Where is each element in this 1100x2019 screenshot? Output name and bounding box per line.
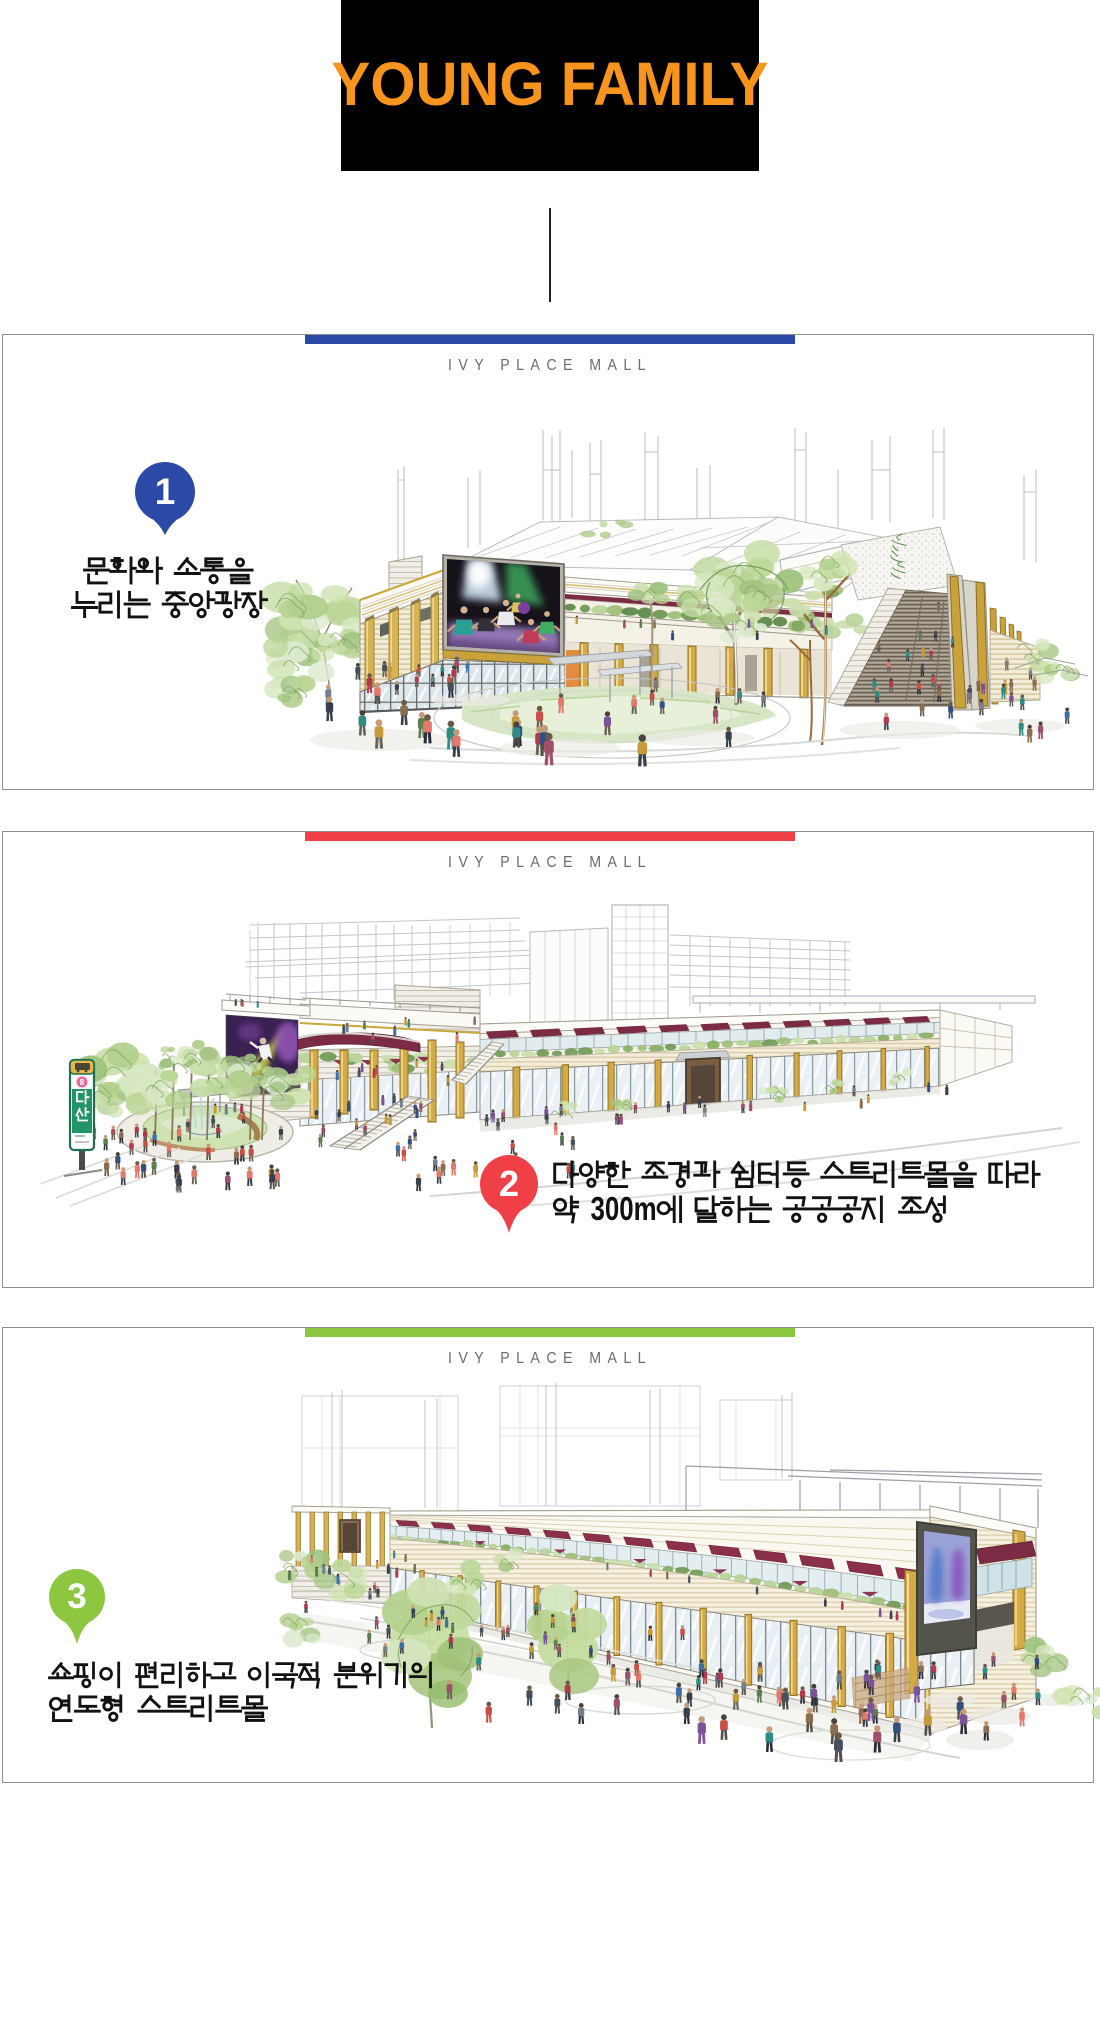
svg-text:1: 1 (155, 471, 176, 512)
svg-text:8: 8 (80, 1078, 85, 1087)
svg-text:3: 3 (67, 1577, 86, 1616)
svg-text:300m: 300m (591, 1190, 657, 1228)
svg-text:YOUNG FAMILY: YOUNG FAMILY (332, 50, 769, 118)
svg-text:2: 2 (499, 1163, 519, 1204)
